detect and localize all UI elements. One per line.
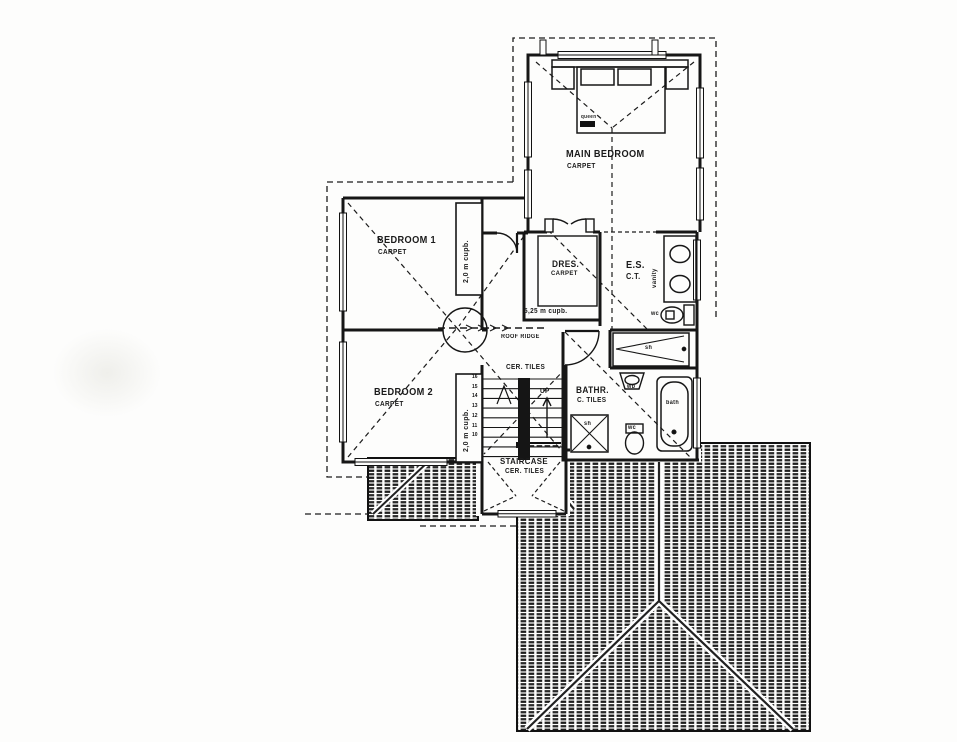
stair-number: 11 [472, 424, 477, 430]
queen-label-mark [580, 121, 595, 127]
vanity-label: vanity [652, 268, 658, 288]
wall-tick-left [540, 40, 546, 55]
window-main-bedroom-right-upper [697, 88, 704, 158]
stair-number: 13 [472, 404, 478, 410]
wc-bathroom-label: wc [628, 425, 636, 431]
bedroom2-label: BEDROOM 2 [374, 388, 433, 398]
main-bedroom-label: MAIN BEDROOM [566, 150, 645, 160]
shower-ensuite-label: sh [645, 345, 652, 351]
shower-bathroom-label: sh [584, 421, 591, 427]
staircase-finish: CER. TILES [505, 468, 544, 475]
cupboard1-label: 2,0 m cupb. [463, 240, 470, 283]
wc-ensuite-label: wc [651, 311, 659, 317]
stair-number: 16 [472, 375, 478, 381]
window-stairwell-bottom [498, 511, 556, 518]
roof-ridge-line [438, 325, 545, 331]
window-bathroom-right [694, 378, 701, 448]
door-bedroom2 [443, 330, 487, 352]
bathroom-finish: C. TILES [577, 397, 606, 404]
bedroom2-finish: CARPET [375, 401, 404, 408]
stair-number: 15 [472, 385, 478, 391]
landing-finish-label: CER. TILES [506, 364, 545, 371]
cupboard2-label: 2,0 m cupb. [463, 409, 470, 452]
roof-ridge-label: ROOF RIDGE [501, 334, 540, 340]
window-bedroom1-left [340, 213, 347, 311]
window-bedroom2-bottom [355, 459, 447, 466]
stair-number: 14 [472, 394, 478, 400]
door-dressing-double [545, 219, 594, 232]
bath-label: bath [666, 400, 679, 406]
staircase-label: STAIRCASE [500, 457, 548, 466]
window-main-bedroom-left-upper [525, 82, 532, 157]
window-main-bedroom-left-lower [525, 170, 532, 218]
vanity-unit [664, 236, 696, 302]
bedroom1-label: BEDROOM 1 [377, 236, 436, 246]
ensuite-finish: C.T. [626, 273, 641, 281]
staircase-balustrade [518, 378, 530, 460]
bed-size-label: queen [581, 115, 596, 120]
dressing-cupboard-label: 5,25 m cupb. [524, 308, 567, 315]
window-bedroom2-left [340, 342, 347, 442]
dressing-finish: CARPET [551, 271, 578, 278]
bedroom1-finish: CARPET [378, 249, 407, 256]
dressing-label: DRES. [552, 260, 579, 269]
window-main-bedroom-right-lower [697, 168, 704, 220]
bed [552, 60, 688, 133]
bathroom-label: BATHR. [576, 386, 609, 395]
wc-ensuite [661, 305, 694, 325]
door-main-bedroom [497, 233, 517, 253]
stair-number: 10 [472, 433, 478, 439]
ensuite-label: E.S. [626, 261, 645, 271]
window-ensuite-right [694, 240, 701, 300]
window-main-bedroom-top [558, 52, 666, 59]
wall-tick-right [652, 40, 658, 55]
basin-label: wb [627, 384, 635, 390]
floor-plan-drawing [0, 0, 957, 742]
floor-plan-canvas: MAIN BEDROOM CARPET queen BEDROOM 1 CARP… [0, 0, 957, 742]
up-label: UP [540, 388, 550, 395]
main-bedroom-finish: CARPET [567, 163, 596, 170]
stair-number: 12 [472, 414, 478, 420]
side-roof [368, 458, 478, 520]
